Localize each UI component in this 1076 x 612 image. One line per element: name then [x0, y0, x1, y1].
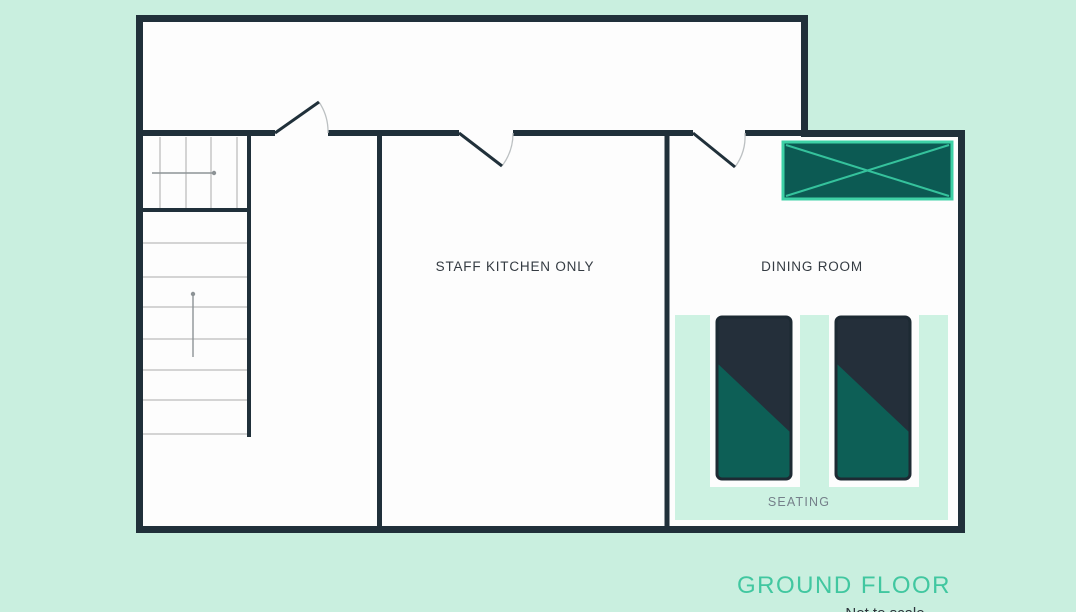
dining-table-icon: [717, 317, 791, 479]
dining-table-icon: [836, 317, 910, 479]
floorplan-canvas: STAFF KITCHEN ONLY DINING ROOM SEATING G…: [0, 0, 1076, 612]
crossed-counter-icon: [783, 142, 952, 199]
room-label-staff-kitchen: STAFF KITCHEN ONLY: [365, 259, 665, 274]
room-label-seating: SEATING: [699, 495, 899, 509]
floor-title: GROUND FLOOR: [737, 572, 951, 600]
seating-area: [675, 315, 948, 520]
room-label-dining: DINING ROOM: [662, 259, 962, 274]
scale-note: Not to scale: [785, 605, 985, 612]
floorplan-drawing: [0, 0, 1076, 612]
